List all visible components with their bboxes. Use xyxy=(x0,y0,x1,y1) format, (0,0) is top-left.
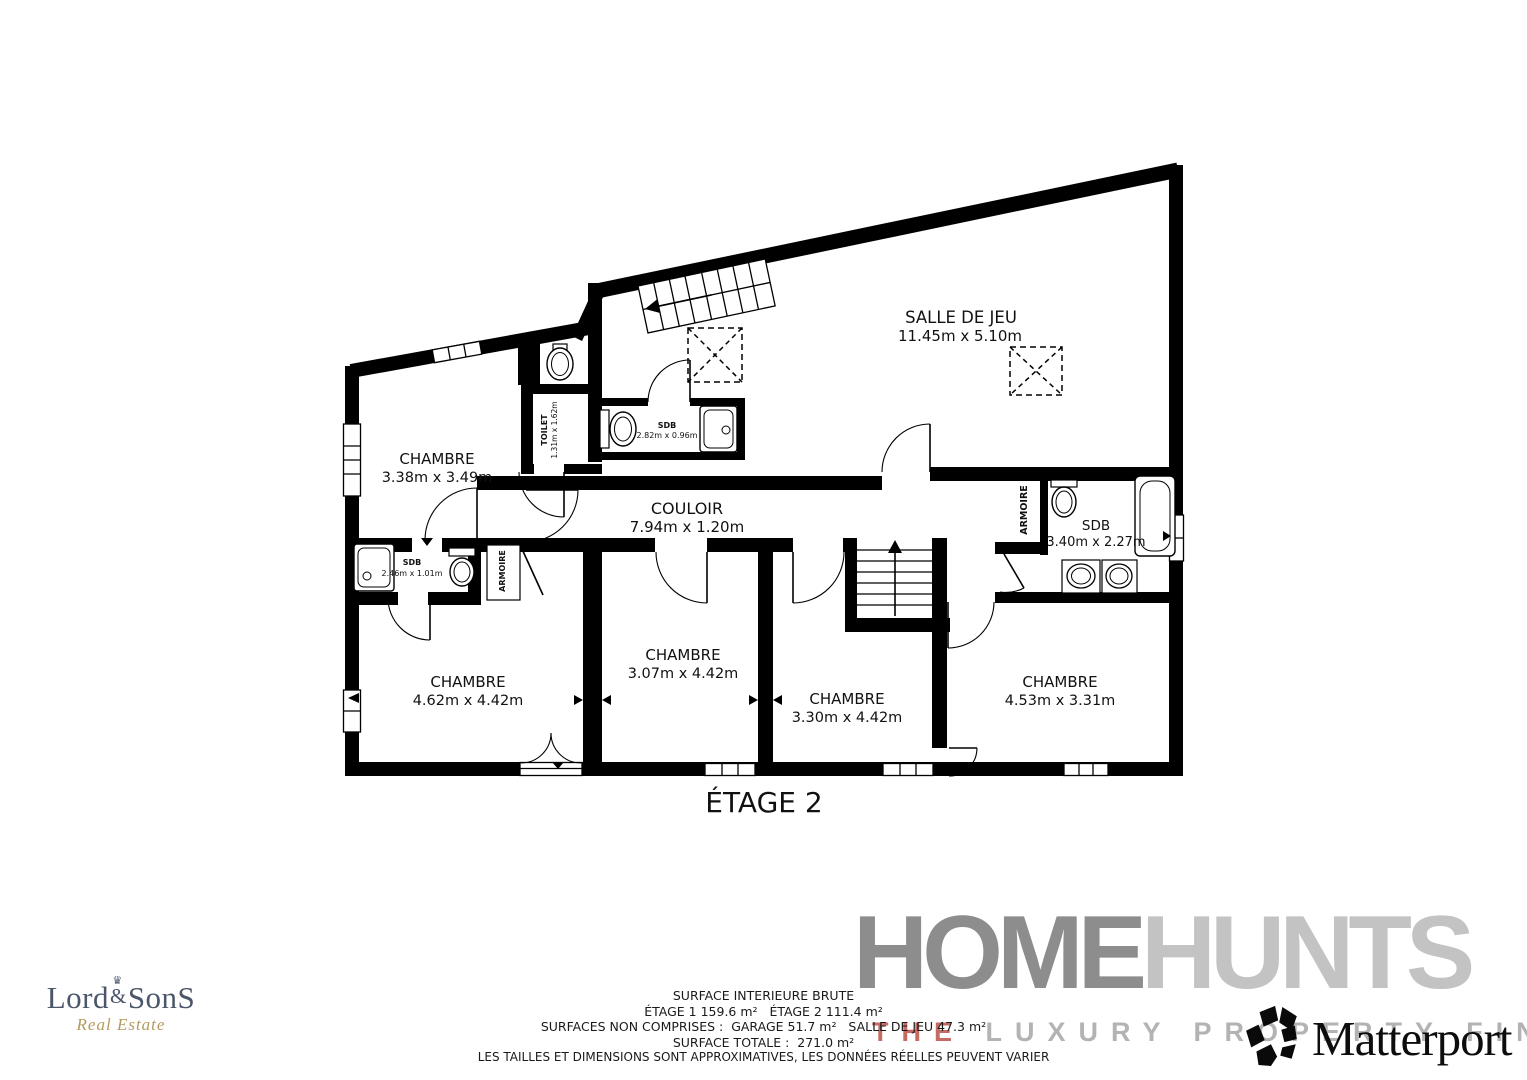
room-label-salle-de-jeu: SALLE DE JEU xyxy=(905,308,1017,327)
room-label-sdb-right: SDB xyxy=(1082,518,1110,534)
closet-door xyxy=(522,549,543,595)
lordsons-part2: SonS xyxy=(128,980,195,1015)
window xyxy=(1064,764,1108,776)
french-doors xyxy=(521,733,581,763)
door xyxy=(425,488,477,540)
wall-top-slant xyxy=(592,170,1178,292)
sink xyxy=(547,344,573,380)
room-label-armoire-right: ARMOIRE xyxy=(1019,485,1030,535)
room-dims-sdb-right: 3.40m x 2.27m xyxy=(1046,535,1145,550)
door xyxy=(948,602,994,648)
room-label-sdb-left: SDB xyxy=(403,558,422,567)
lordsons-logo: Lord♛&SonS Real Estate xyxy=(26,982,216,1033)
room-dims-chambre-sw: 4.62m x 4.42m xyxy=(413,693,524,709)
toilet-fixture xyxy=(600,410,636,448)
lordsons-ampersand: ♛& xyxy=(109,984,128,1008)
room-dims-chambre-e: 4.53m x 3.31m xyxy=(1005,693,1116,709)
stairs-arrow xyxy=(888,540,902,553)
room-label-chambre-e: CHAMBRE xyxy=(1022,673,1097,691)
surface-line-1: SURFACE INTERIEURE BRUTE xyxy=(0,988,1527,1004)
shower xyxy=(700,406,737,452)
door-threshold xyxy=(520,763,582,776)
door xyxy=(1000,554,1024,592)
floorplan-canvas: SALLE DE JEU 11.45m x 5.10m CHAMBRE 3.38… xyxy=(0,0,1527,1080)
stairs-lower xyxy=(857,540,932,616)
window xyxy=(883,764,933,776)
toilet-fixture xyxy=(1051,480,1077,517)
sink xyxy=(1102,560,1137,593)
room-dims-chambre-se: 3.30m x 4.42m xyxy=(792,710,903,726)
room-label-chambre-se: CHAMBRE xyxy=(809,690,884,708)
room-label-couloir: COULOIR xyxy=(651,499,723,518)
room-label-chambre-s: CHAMBRE xyxy=(645,646,720,664)
room-dims-chambre-s: 3.07m x 4.42m xyxy=(628,666,739,682)
room-dims-chambre-nw: 3.38m x 3.49m xyxy=(382,470,493,486)
room-label-chambre-sw: CHAMBRE xyxy=(430,673,505,691)
window xyxy=(344,424,361,496)
room-label-chambre-nw: CHAMBRE xyxy=(399,450,474,468)
matterport-wordmark: Matterport xyxy=(1312,1014,1512,1063)
crown-icon: ♛ xyxy=(112,975,122,986)
room-dims-sdb-top: 2.82m x 0.96m xyxy=(636,431,697,440)
door xyxy=(793,552,844,603)
room-label-toilet: TOILET xyxy=(540,414,549,446)
toilet-fixture xyxy=(449,548,475,586)
room-dims-couloir: 7.94m x 1.20m xyxy=(630,518,744,536)
floorplan-page: { "floor_title": "ÉTAGE 2", "rooms": { "… xyxy=(0,0,1527,1080)
door xyxy=(648,360,690,402)
lordsons-part1: Lord xyxy=(47,980,109,1015)
lordsons-tagline: Real Estate xyxy=(26,1016,216,1033)
floor-title: ÉTAGE 2 xyxy=(705,785,822,819)
matterport-logo: Matterport xyxy=(1244,1004,1512,1070)
window xyxy=(432,341,482,362)
room-dims-sdb-left: 2.46m x 1.01m xyxy=(381,569,442,578)
matterport-icon xyxy=(1244,1004,1302,1070)
room-dims-salle-de-jeu: 11.45m x 5.10m xyxy=(898,327,1022,345)
window xyxy=(705,764,755,776)
sink xyxy=(1062,560,1100,593)
lordsons-wordmark: Lord♛&SonS xyxy=(47,982,196,1013)
door xyxy=(656,552,707,603)
shower xyxy=(354,544,394,591)
skylight xyxy=(1010,347,1062,395)
room-dims-toilet: 1.31m x 1.62m xyxy=(550,401,559,458)
room-label-armoire-left: ARMOIRE xyxy=(498,550,507,592)
door xyxy=(882,424,930,472)
skylight xyxy=(688,328,742,382)
room-label-sdb-top: SDB xyxy=(658,421,677,430)
